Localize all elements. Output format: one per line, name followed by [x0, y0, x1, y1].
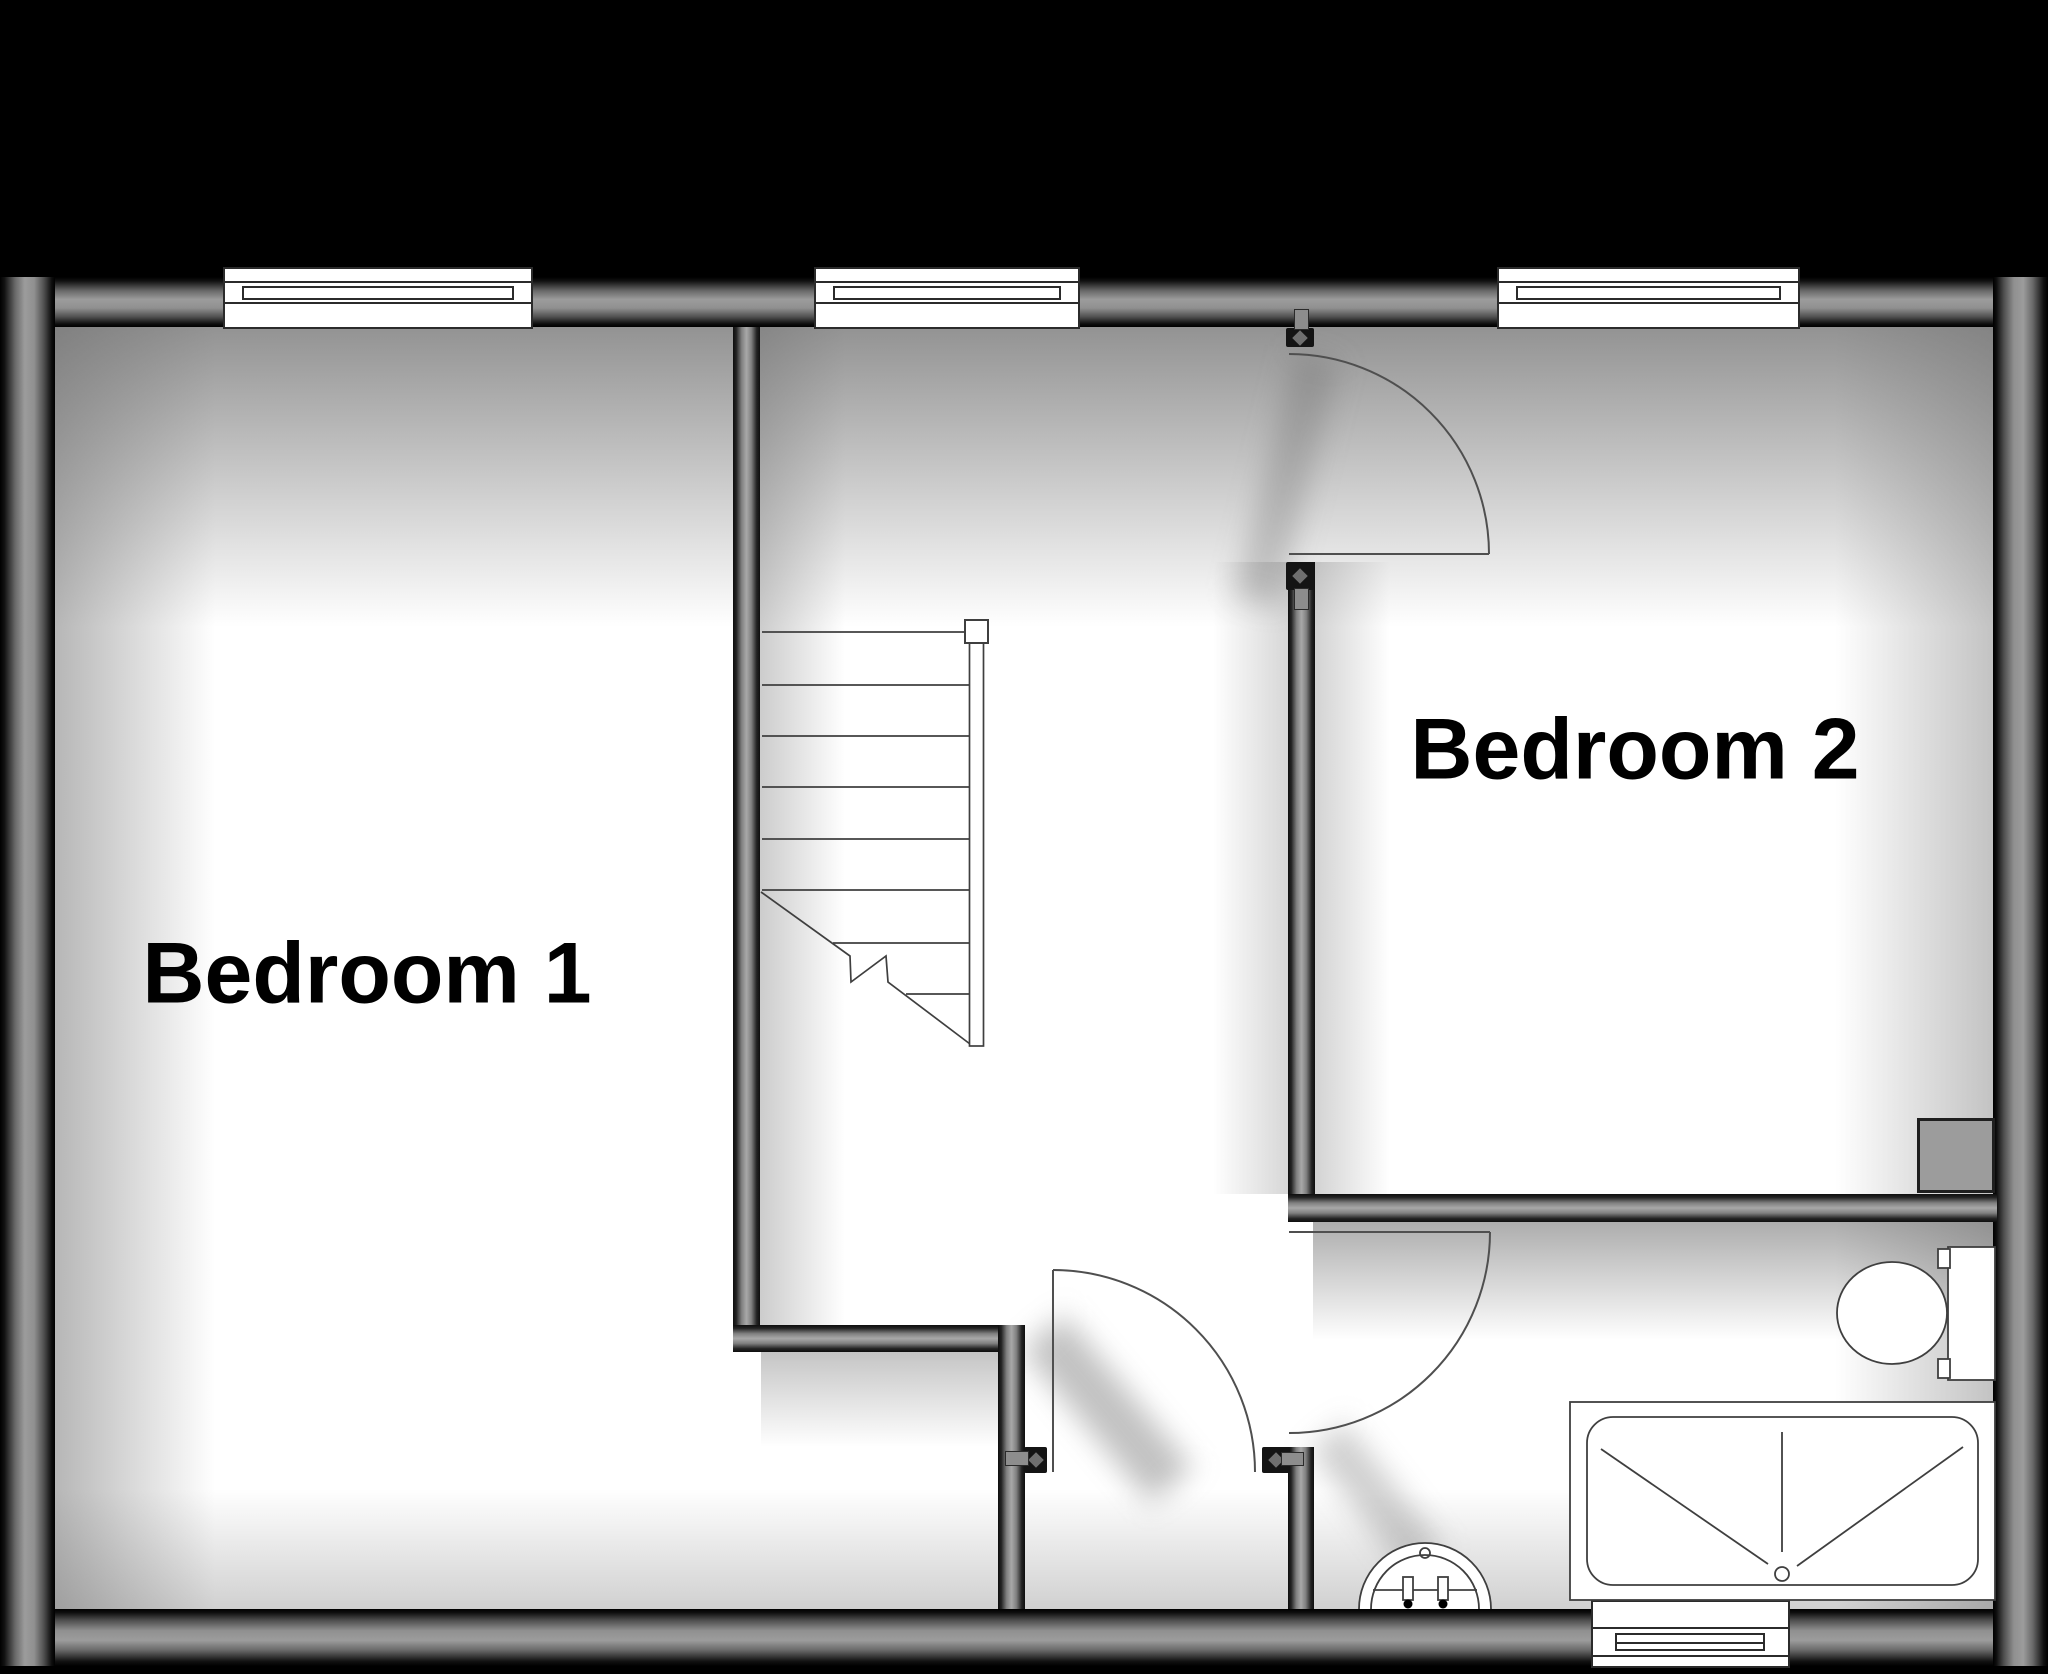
door-bedroom2: [1289, 354, 1489, 554]
toilet: [1837, 1247, 1995, 1380]
toilet-bowl: [1837, 1262, 1947, 1364]
room-label-bedroom-2: Bedroom 2: [1410, 701, 1859, 800]
pedestal-sink: [1359, 1543, 1491, 1609]
door-swing-arc: [1053, 1270, 1255, 1472]
door-swing-arc: [1289, 354, 1489, 554]
door-bathroom: [1289, 1232, 1490, 1433]
door-swing-arc: [1289, 1232, 1490, 1433]
bath: [1570, 1402, 1995, 1600]
staircase: [761, 620, 988, 1046]
sink-tap-right: [1438, 1577, 1448, 1600]
sink-tap-left: [1403, 1577, 1413, 1600]
plan-linework: [0, 0, 2048, 1674]
toilet-cistern: [1948, 1247, 1995, 1380]
floor-plan: Bedroom 1 Bedroom 2: [0, 0, 2048, 1674]
newel-post: [965, 620, 988, 643]
stair-break-line: [761, 892, 970, 1044]
door-landing: [1053, 1270, 1255, 1472]
stair-stringer: [970, 640, 984, 1046]
room-label-bedroom-1: Bedroom 1: [142, 925, 591, 1024]
